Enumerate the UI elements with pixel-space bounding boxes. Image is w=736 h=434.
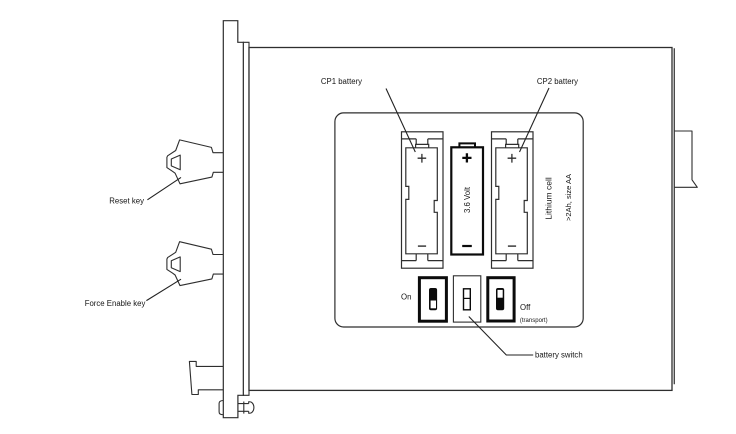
svg-text:Reset key: Reset key xyxy=(109,197,144,206)
svg-text:3.6 Volt: 3.6 Volt xyxy=(463,186,472,213)
svg-text:battery switch: battery switch xyxy=(535,351,583,360)
svg-text:CP1 battery: CP1 battery xyxy=(321,77,362,86)
svg-text:CP2 battery: CP2 battery xyxy=(537,77,578,86)
svg-text:>2Ah, size AA: >2Ah, size AA xyxy=(564,174,573,221)
svg-text:On: On xyxy=(401,292,411,301)
svg-text:Lithium cell: Lithium cell xyxy=(544,177,554,220)
svg-text:Force Enable key: Force Enable key xyxy=(85,299,146,308)
svg-text:(transport): (transport) xyxy=(520,318,548,324)
svg-text:Off: Off xyxy=(520,303,531,312)
